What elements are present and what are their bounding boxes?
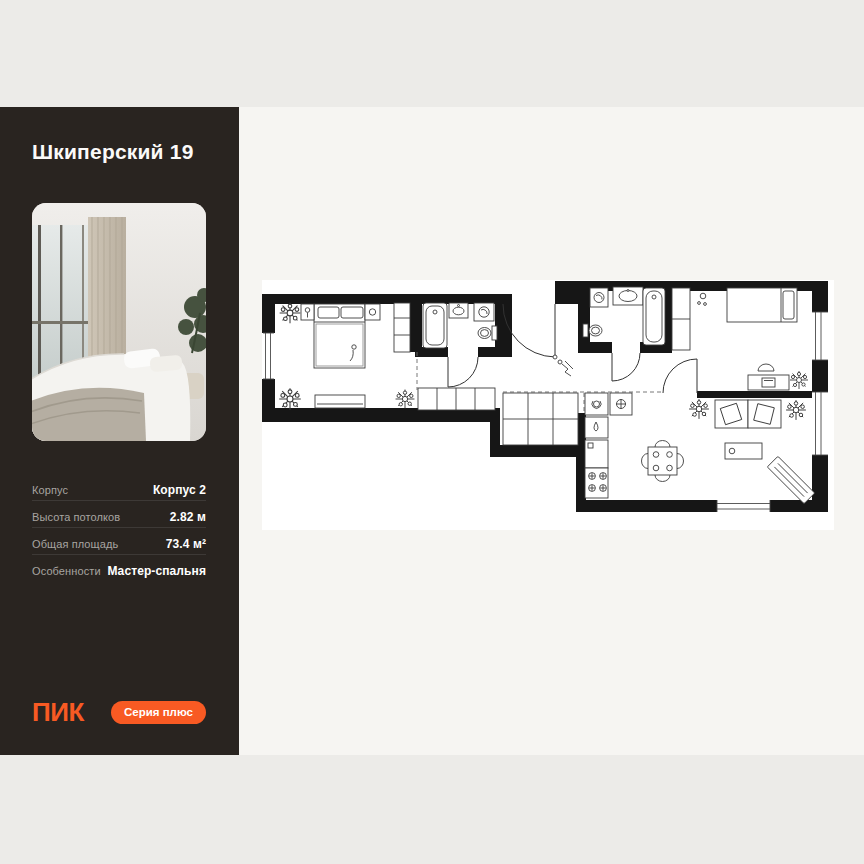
detail-row-korpus: Корпус Корпус 2 [32, 483, 206, 501]
sidebar-footer: ПИК Серия плюс [32, 701, 206, 724]
page-title: Шкиперский 19 [32, 141, 206, 163]
bedroom-photo-art [32, 203, 206, 441]
detail-value: Мастер-спальня [107, 564, 206, 578]
detail-row-features: Особенности Мастер-спальня [32, 555, 206, 581]
detail-label: Высота потолков [32, 511, 120, 523]
listing-card: Шкиперский 19 [0, 107, 864, 755]
detail-label: Общая площадь [32, 538, 118, 550]
detail-value: 73.4 м² [166, 537, 206, 551]
sidebar: Шкиперский 19 [0, 107, 239, 755]
detail-value: 2.82 м [170, 510, 206, 524]
details-list: Корпус Корпус 2 Высота потолков 2.82 м О… [32, 483, 206, 581]
detail-row-ceiling-height: Высота потолков 2.82 м [32, 501, 206, 528]
detail-label: Корпус [32, 484, 68, 496]
floor-plan [262, 280, 834, 530]
floor-plan-drawing [262, 280, 834, 530]
detail-row-total-area: Общая площадь 73.4 м² [32, 528, 206, 555]
series-plus-button[interactable]: Серия плюс [111, 701, 206, 724]
detail-label: Особенности [32, 565, 101, 577]
bedroom-photo [32, 203, 206, 441]
floorplan-panel [239, 107, 864, 755]
pik-logo[interactable]: ПИК [32, 701, 84, 724]
detail-value: Корпус 2 [153, 483, 206, 497]
